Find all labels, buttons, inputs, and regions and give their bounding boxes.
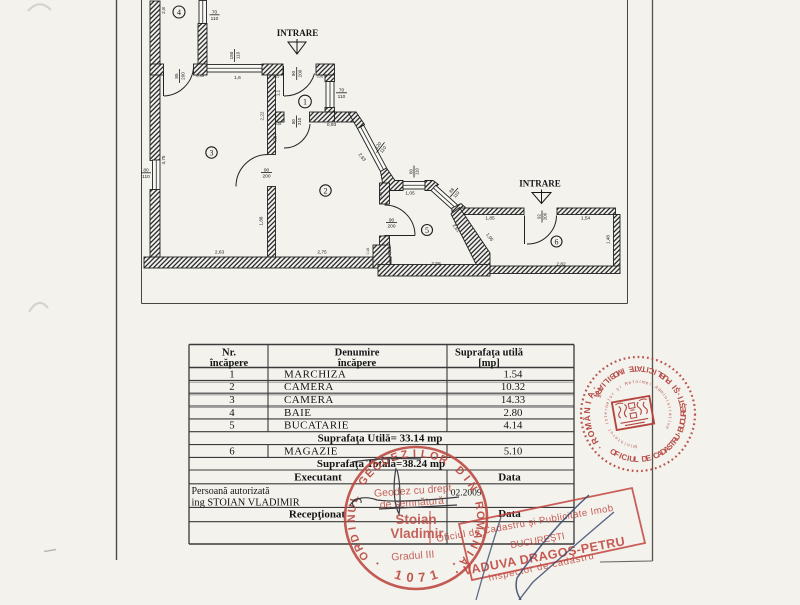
svg-text:110: 110 [142,174,150,180]
svg-text:ing STOIAN VLADIMIR: ing STOIAN VLADIMIR [192,498,300,509]
svg-text:MARCHIZA: MARCHIZA [284,368,346,380]
svg-text:7: 7 [418,569,427,585]
svg-text:150: 150 [229,51,234,59]
svg-text:1: 1 [229,368,234,380]
svg-text:Â: Â [581,415,593,422]
svg-text:1.54: 1.54 [504,368,523,380]
svg-text:N: N [346,514,358,522]
svg-text:14.33: 14.33 [501,394,525,406]
svg-text:INTRARE: INTRARE [277,28,319,38]
svg-text:BAIE: BAIE [284,407,311,419]
svg-text:MAGAZIE: MAGAZIE [284,445,338,457]
svg-text:200: 200 [298,69,303,77]
svg-text:200: 200 [387,224,395,230]
svg-text:0,58: 0,58 [378,191,383,200]
svg-text:200: 200 [262,174,270,180]
svg-text:M: M [633,444,637,449]
svg-text:10.32: 10.32 [501,381,525,393]
svg-text:2.80: 2.80 [504,407,523,419]
svg-text:Persoană autorizată: Persoană autorizată [192,486,271,497]
svg-text:4,75: 4,75 [161,155,166,164]
svg-text:Recepţionat: Recepţionat [289,509,346,521]
svg-text:0,25: 0,25 [273,75,280,79]
svg-text:3: 3 [229,394,234,406]
svg-text:0,16: 0,16 [366,248,370,255]
svg-text:1,48: 1,48 [606,235,611,244]
svg-text:85: 85 [174,73,179,79]
svg-text:210: 210 [297,117,302,125]
svg-text:1,85: 1,85 [485,216,495,222]
svg-text:110: 110 [235,51,240,59]
svg-text:4: 4 [177,8,181,17]
svg-text:80: 80 [291,119,296,124]
svg-text:BUCATARIE: BUCATARIE [284,420,349,432]
svg-text:0,26: 0,26 [317,75,324,79]
svg-text:6: 6 [229,446,234,457]
svg-text:Suprafaţa Utilă= 33.14 mp: Suprafaţa Utilă= 33.14 mp [318,432,443,444]
svg-text:3: 3 [210,148,214,157]
svg-text:0,97: 0,97 [273,133,278,142]
svg-text:6: 6 [555,237,559,246]
svg-text:CAMERA: CAMERA [284,381,334,393]
svg-text:0,93: 0,93 [327,122,337,128]
svg-text:Executant: Executant [294,471,342,483]
svg-text:110: 110 [415,167,420,175]
svg-text:1,54: 1,54 [581,216,591,222]
svg-text:4: 4 [229,407,235,419]
svg-text:2,8: 2,8 [161,7,167,14]
svg-text:0: 0 [406,569,415,585]
svg-text:1,05: 1,05 [405,191,415,197]
svg-text:60: 60 [408,169,413,174]
svg-text:0,85: 0,85 [387,246,392,255]
svg-text:200: 200 [543,212,548,220]
svg-text:4.14: 4.14 [504,420,523,432]
svg-text:N: N [582,407,592,414]
svg-text:5: 5 [425,226,429,235]
svg-text:200: 200 [180,72,185,80]
svg-text:2: 2 [229,381,234,393]
svg-text:Data: Data [498,471,521,483]
svg-text:CAMERA: CAMERA [284,394,334,406]
svg-text:INTRARE: INTRARE [519,179,561,189]
svg-text:110: 110 [211,16,219,22]
svg-text:92: 92 [536,214,541,219]
svg-text:2,75: 2,75 [317,250,327,256]
svg-text:0,35: 0,35 [196,73,205,78]
svg-text:1,6: 1,6 [234,75,241,81]
svg-text:0,35: 0,35 [275,122,282,126]
svg-text:2: 2 [324,186,328,195]
svg-text:1,88: 1,88 [259,216,264,225]
svg-text:5.10: 5.10 [504,446,522,457]
svg-text:5: 5 [229,420,234,432]
svg-text:2,63: 2,63 [215,250,225,256]
svg-text:încăpere: încăpere [337,358,377,369]
svg-text:1,1: 1,1 [276,89,281,96]
svg-text:2,82: 2,82 [556,262,566,268]
svg-text:110: 110 [338,94,346,100]
svg-text:1: 1 [303,97,307,106]
svg-text:încăpere: încăpere [209,358,249,369]
svg-text:90: 90 [291,71,296,77]
svg-text:L: L [634,455,639,464]
svg-text:2,58: 2,58 [431,261,441,267]
svg-text:[mp]: [mp] [478,358,500,369]
svg-text:2,22: 2,22 [260,111,265,120]
